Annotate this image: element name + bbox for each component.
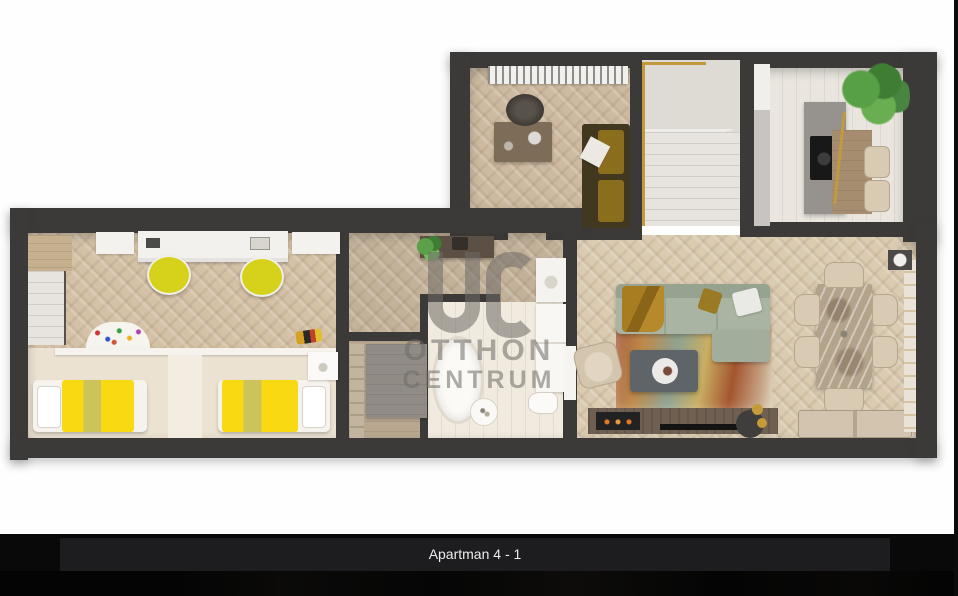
dining-centerpiece [832,322,856,346]
kids-chair-2 [240,257,284,297]
staircase-winders [642,60,740,132]
wall-right-living [916,222,937,458]
coffee-table-tray [652,358,678,384]
right-edge-strip [954,0,958,596]
kids-chair-1 [147,255,191,295]
kids-desk-paper [250,237,270,250]
wall-stairs-kitchen [740,60,754,232]
wall-kidsroom-hallway [336,225,349,445]
kitchen-chair-2 [864,180,890,212]
kids-desk-supplies [196,236,222,248]
living-corner-decor [888,250,912,270]
wall-bathroom-top [420,294,500,302]
kids-bed-2-blanket [222,380,298,432]
kids-bed-partition [168,355,202,438]
kids-stairs-landing [28,235,72,271]
dining-chair-top [824,262,864,288]
wall-right-upper-block [903,52,937,242]
living-window-sill [904,258,916,432]
office-bookshelf [488,66,628,84]
kids-bed-2-pillow [302,386,326,428]
stair-handrail-top [642,62,706,65]
wall-top-left-wing [10,208,582,233]
gold-decor-2 [757,418,767,428]
bathroom-stool [470,398,498,426]
kids-bed-1-pillow [37,386,61,428]
wall-hallway-closet [349,332,427,341]
dining-chair-left-2 [794,336,820,368]
bathroom-washer [536,258,566,302]
kids-shelf-left [96,232,134,254]
dining-chair-right-1 [872,294,898,326]
kids-room-divider [55,348,336,355]
kids-stairs [28,271,64,345]
kitchen-chair-1 [864,146,890,178]
office-chair [506,94,544,126]
toilet [528,392,558,414]
wall-bottom [10,438,937,458]
floorplan-render: OTTHON CENTRUM Apartman 4 - 1 [0,0,958,596]
office-sofa-cushion-bottom [598,180,624,222]
hallway-decor [452,237,468,250]
kitchen-plant [840,62,910,130]
hallway-plant [414,233,446,263]
fireplace [596,412,640,430]
kitchen-counter [754,64,770,226]
living-sofa-chaise [712,330,770,362]
gold-decor-1 [752,404,763,415]
wall-left-wing [10,208,28,460]
kids-desk-laptop [146,238,160,248]
wall-office-stairs [630,60,642,232]
kids-shelf-right [292,232,340,254]
kids-nightstand [308,352,338,380]
caption-photo-strip [0,571,958,596]
bathroom-vanity [536,304,566,392]
staircase-straight-run [642,132,740,226]
kids-bed-1-blanket [62,380,134,432]
closet-shelves [350,344,364,438]
sofa-throw-mustard [622,286,664,332]
kids-stairs-rail [64,271,66,345]
stair-handrail-left [642,62,645,226]
office-desk [494,122,552,162]
tv [660,424,744,430]
dining-chair-left-1 [794,294,820,326]
dining-chair-right-2 [872,336,898,368]
caption-label: Apartman 4 - 1 [60,538,890,571]
living-bench [798,410,912,438]
closet-wardrobe [366,344,427,418]
